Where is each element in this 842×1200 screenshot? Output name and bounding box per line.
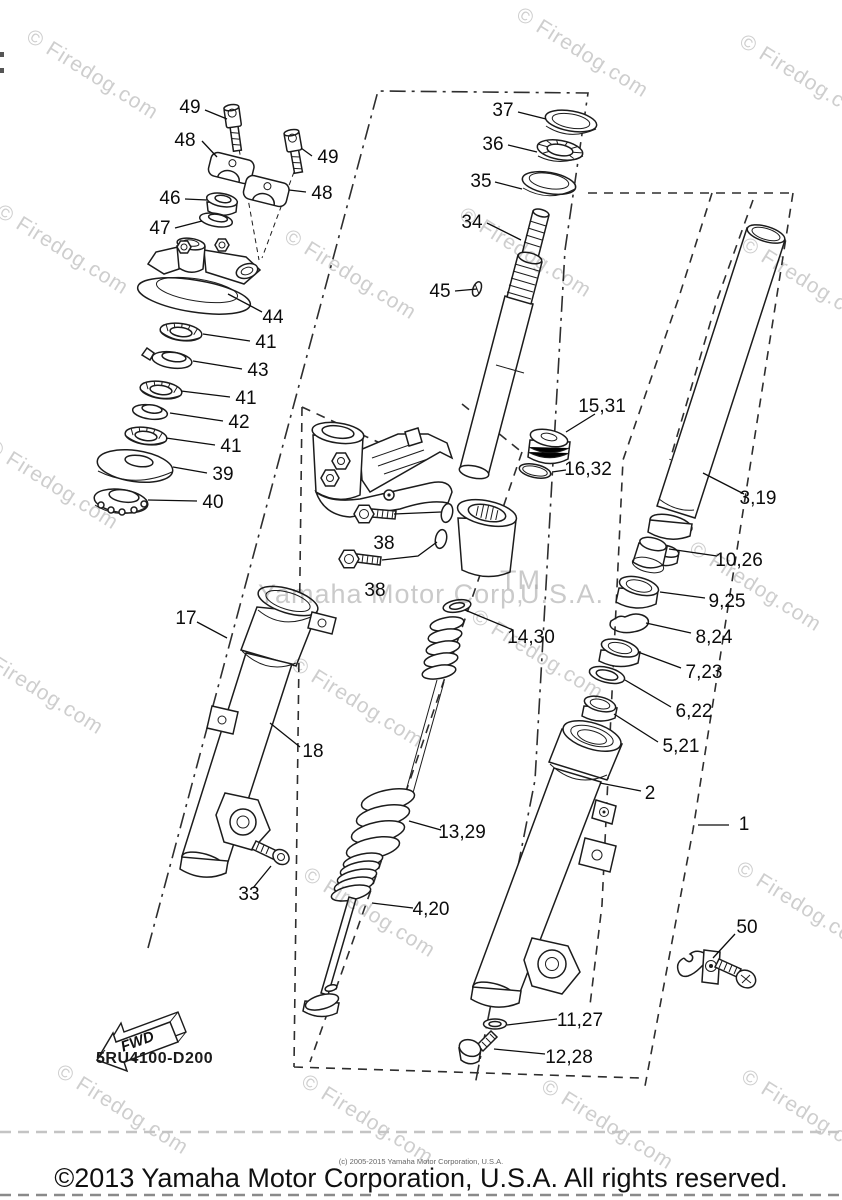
footer-copyright: ©2013 Yamaha Motor Corporation, U.S.A. A… xyxy=(54,1163,787,1193)
callout-15-31: 15,31 xyxy=(578,396,626,417)
callout-7-23: 7,23 xyxy=(686,662,723,683)
callout-8-24: 8,24 xyxy=(696,627,733,648)
watermark-text: © Firedog.com xyxy=(280,225,420,325)
callout-48b: 48 xyxy=(311,183,332,204)
watermark-text: © Firedog.com xyxy=(732,857,842,957)
callout-37: 37 xyxy=(492,100,513,121)
callout-35: 35 xyxy=(470,171,491,192)
part-outer-tube-2 xyxy=(470,715,624,1009)
part-bolt-33 xyxy=(252,841,292,868)
watermark-text: © Firedog.com xyxy=(297,1070,437,1170)
watermark-text: © Firedog.com xyxy=(467,605,607,705)
callout-4-20: 4,20 xyxy=(413,899,450,920)
part-ringnut-41a xyxy=(159,321,203,344)
part-capbolt-15-31 xyxy=(528,426,570,463)
callout-16-32: 16,32 xyxy=(564,459,612,480)
part-bushing-10-26 xyxy=(631,535,668,576)
callout-38a: 38 xyxy=(373,533,394,554)
callout-12-28: 12,28 xyxy=(545,1047,593,1068)
fork-exploded-diagram: 49 48 49 48 46 47 44 41 43 41 42 41 39 4… xyxy=(0,0,842,1200)
part-seal-7-23 xyxy=(599,636,640,667)
part-lockwasher-43 xyxy=(142,348,193,371)
watermark-text: © Firedog.com xyxy=(537,1075,677,1175)
callout-36: 36 xyxy=(482,134,503,155)
watermark-text: © Firedog.com xyxy=(22,25,162,125)
callout-41c: 41 xyxy=(220,436,241,457)
watermark-text: © Firedog.com xyxy=(737,1065,842,1165)
part-bolt-12-28 xyxy=(457,1031,497,1064)
part-bolt-49a xyxy=(224,104,245,152)
parts-diagram-page: 49 48 49 48 46 47 44 41 43 41 42 41 39 4… xyxy=(0,0,842,1200)
watermark-text: © Firedog.com xyxy=(0,435,123,535)
callout-39: 39 xyxy=(212,464,233,485)
center-watermark-text-2: U.S.A. xyxy=(520,579,604,609)
part-seal-9-25 xyxy=(616,573,660,608)
watermark-text: © Firedog.com xyxy=(0,200,133,300)
callout-13-29: 13,29 xyxy=(438,822,486,843)
part-race-35 xyxy=(521,168,578,198)
part-clamp-48b xyxy=(242,174,290,208)
callout-5-21: 5,21 xyxy=(663,736,700,757)
part-cover-39 xyxy=(95,445,175,486)
part-spring-13-29 xyxy=(345,785,417,864)
callout-49b: 49 xyxy=(317,147,338,168)
watermark-text: © Firedog.com xyxy=(512,3,652,103)
callout-41b: 41 xyxy=(235,388,256,409)
center-watermark: Yamaha Motor Corp, TM U.S.A. xyxy=(258,565,604,609)
callout-33: 33 xyxy=(238,884,259,905)
part-nut-46 xyxy=(206,191,239,215)
part-ringnut-41c xyxy=(124,425,168,448)
callout-11-27: 11,27 xyxy=(557,1010,603,1031)
page-border-marks xyxy=(0,52,842,1195)
part-inner-tube-3-19 xyxy=(648,221,787,565)
callout-17: 17 xyxy=(175,608,196,629)
callout-46: 46 xyxy=(159,188,180,209)
watermark-text: © Firedog.com xyxy=(735,30,842,130)
callout-48a: 48 xyxy=(174,130,195,151)
center-watermark-text-1: Yamaha Motor Corp, xyxy=(258,579,525,609)
callout-6-22: 6,22 xyxy=(676,701,713,722)
callout-45: 45 xyxy=(429,281,450,302)
part-washer-42 xyxy=(132,403,169,422)
callout-43: 43 xyxy=(247,360,268,381)
watermark-text: © Firedog.com xyxy=(0,640,108,740)
callout-40: 40 xyxy=(202,492,223,513)
watermark-layer: Yamaha Motor Corp, TM U.S.A. © Firedog.c… xyxy=(0,3,842,1175)
callout-42: 42 xyxy=(228,412,249,433)
callout-47: 47 xyxy=(149,218,170,239)
part-bearing-36 xyxy=(536,137,585,164)
callout-2: 2 xyxy=(645,783,656,804)
callout-9-25: 9,25 xyxy=(709,591,746,612)
callout-18: 18 xyxy=(302,741,323,762)
part-washer-11-27 xyxy=(484,1019,507,1029)
callout-44: 44 xyxy=(262,307,284,328)
callout-1: 1 xyxy=(739,814,750,835)
assembly-code: 5RU4100-D200 xyxy=(96,1050,213,1067)
part-cover-37 xyxy=(544,107,599,136)
watermark-text: © Firedog.com xyxy=(287,653,427,753)
callout-50: 50 xyxy=(736,917,757,938)
part-clip-50 xyxy=(678,950,759,991)
watermark-text: © Firedog.com xyxy=(52,1060,192,1160)
callout-49a: 49 xyxy=(179,97,200,118)
part-oring-16-32 xyxy=(518,461,552,480)
part-crown-44 xyxy=(135,236,260,320)
part-ringnut-41b xyxy=(139,379,183,402)
callout-41a: 41 xyxy=(255,332,276,353)
part-bolt-49b xyxy=(284,128,306,173)
callout-3-19: 3,19 xyxy=(740,488,777,509)
